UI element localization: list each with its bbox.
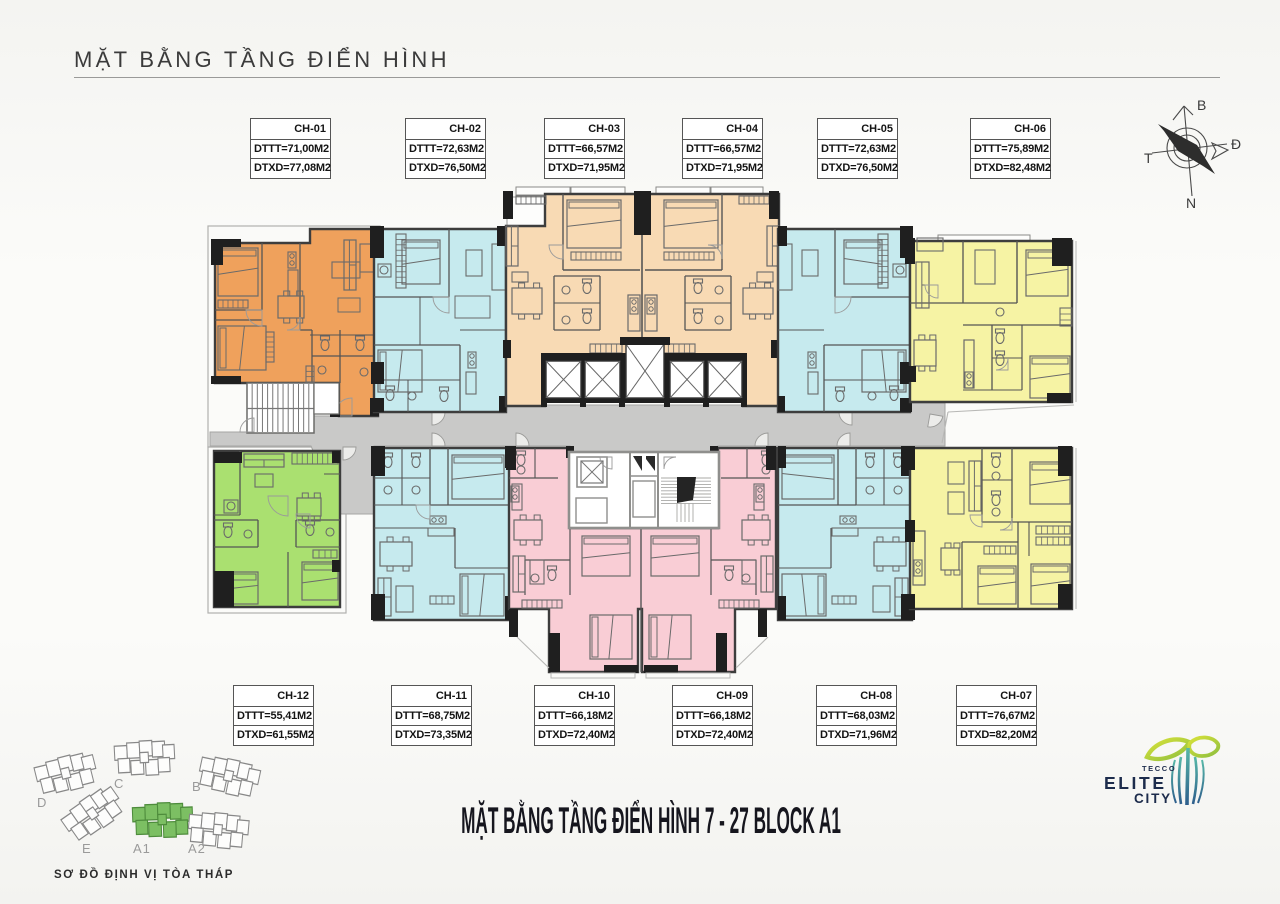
svg-text:N: N xyxy=(1186,195,1196,211)
svg-text:B: B xyxy=(1197,97,1206,113)
svg-text:C: C xyxy=(114,776,124,791)
svg-text:D: D xyxy=(37,795,47,810)
svg-text:T: T xyxy=(1144,150,1153,166)
svg-text:B: B xyxy=(192,779,202,794)
svg-text:TECCO: TECCO xyxy=(1142,764,1176,773)
svg-text:CITY: CITY xyxy=(1134,791,1172,806)
svg-text:A2: A2 xyxy=(188,841,206,856)
svg-text:ELITE: ELITE xyxy=(1104,773,1167,793)
svg-text:A1: A1 xyxy=(133,841,151,856)
svg-text:Đ: Đ xyxy=(1231,136,1241,152)
svg-text:E: E xyxy=(82,841,92,856)
